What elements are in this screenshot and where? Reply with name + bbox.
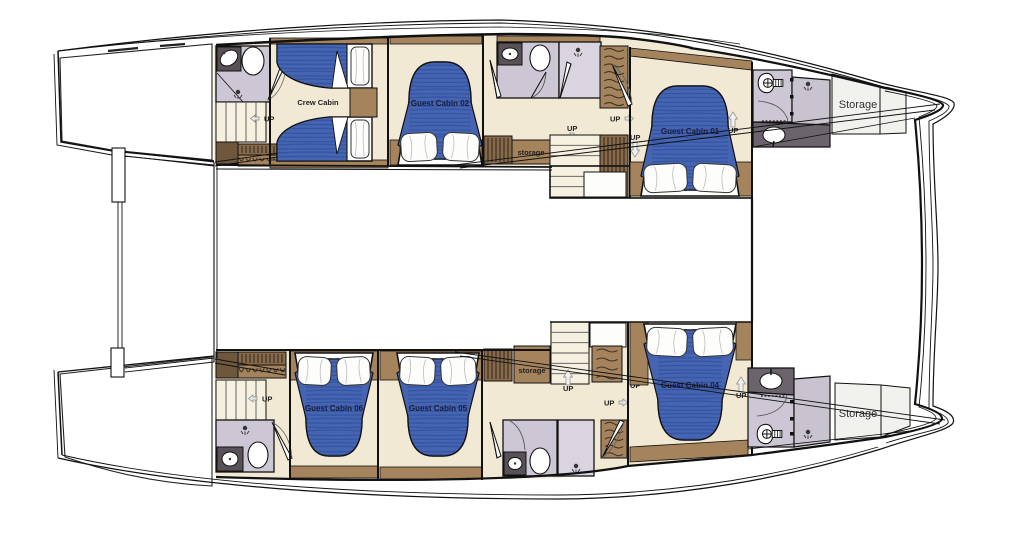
svg-text:Crew Cabin: Crew Cabin: [297, 98, 339, 107]
svg-text:UP: UP: [567, 124, 577, 133]
svg-text:Guest Cabin 01: Guest Cabin 01: [661, 127, 720, 136]
svg-text:UP: UP: [630, 133, 640, 142]
svg-text:UP: UP: [604, 399, 614, 408]
svg-text:UP: UP: [610, 115, 620, 124]
svg-text:Guest Cabin 05: Guest Cabin 05: [409, 404, 468, 413]
svg-text:Guest Cabin 06: Guest Cabin 06: [305, 404, 364, 413]
svg-text:Storage: Storage: [839, 99, 878, 111]
svg-text:Guest Cabin 02: Guest Cabin 02: [411, 99, 470, 108]
svg-text:UP: UP: [262, 395, 272, 404]
svg-text:UP: UP: [563, 384, 573, 393]
